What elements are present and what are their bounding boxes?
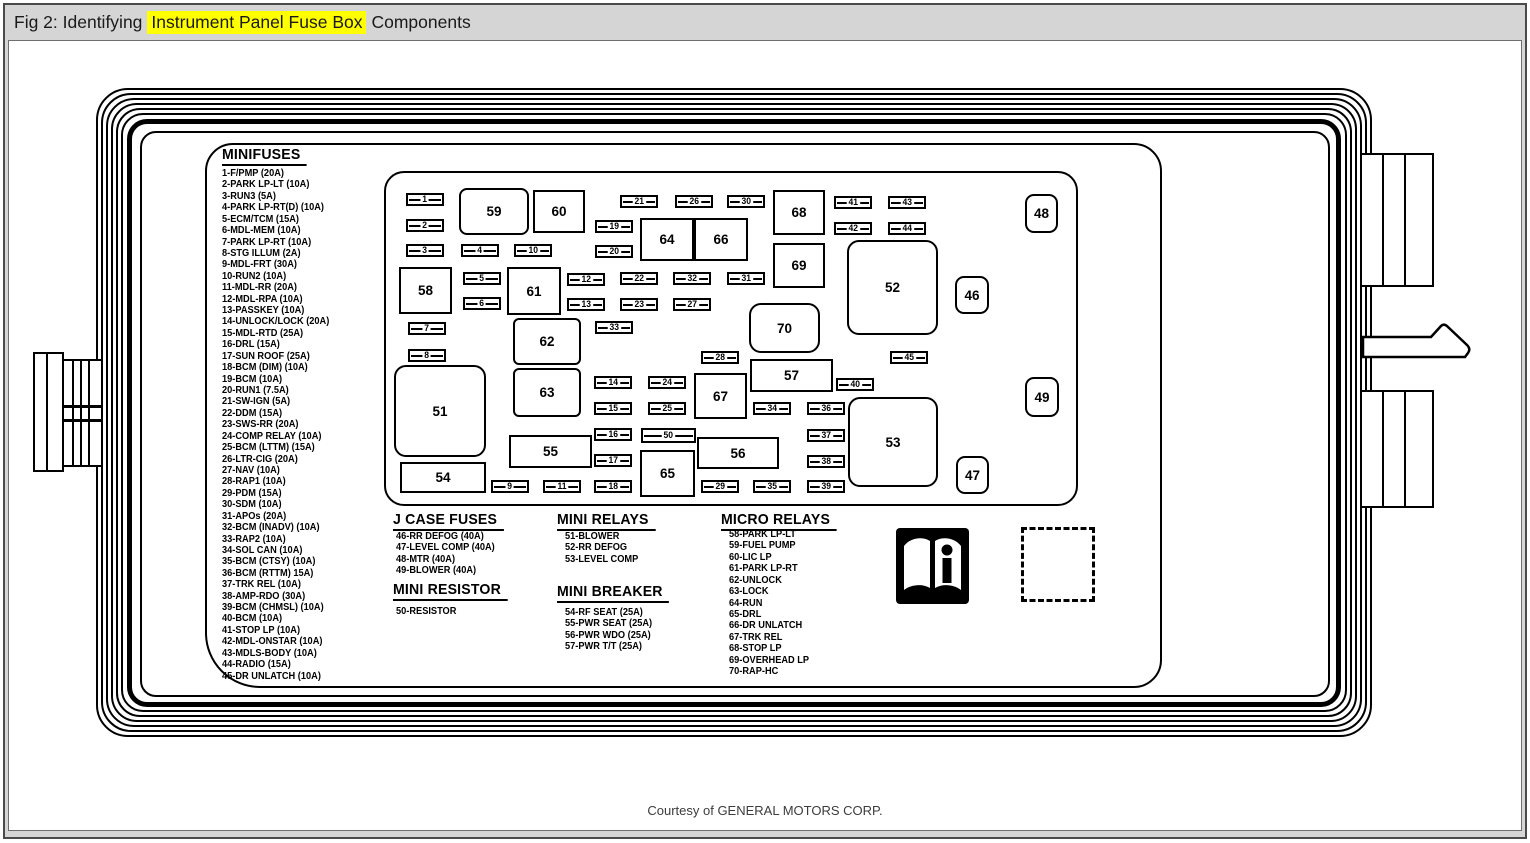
legend-item: 11-MDL-RR (20A) xyxy=(222,282,329,293)
fuse-number: 14 xyxy=(606,378,619,388)
fuse-slot: 17 xyxy=(594,454,632,467)
bracket-line xyxy=(46,354,48,470)
relay-slot: 48 xyxy=(1025,194,1058,233)
fuse-number: 19 xyxy=(607,222,620,232)
legend-item: 61-PARK LP-RT xyxy=(729,563,809,574)
mini-relays-heading: MINI RELAYS xyxy=(557,511,655,531)
fuse-number: 44 xyxy=(900,224,913,234)
fuse-slot: 2 xyxy=(406,219,444,232)
fuse-slot: 38 xyxy=(807,455,845,468)
fuse-slot: 21 xyxy=(620,195,658,208)
fuse-slot: 27 xyxy=(673,298,711,311)
fuse-number: 35 xyxy=(765,482,778,492)
fuse-slot: 15 xyxy=(594,402,632,415)
fuse-number: 39 xyxy=(819,482,832,492)
relay-slot: 63 xyxy=(513,368,581,417)
relay-number: 69 xyxy=(791,258,806,273)
relay-number: 58 xyxy=(418,283,433,298)
relay-number: 59 xyxy=(486,204,501,219)
mini-breaker-list: 54-RF SEAT (25A)55-PWR SEAT (25A)56-PWR … xyxy=(565,607,652,653)
mini-relays-list: 51-BLOWER52-RR DEFOG53-LEVEL COMP xyxy=(565,531,638,565)
fuse-slot: 33 xyxy=(595,321,633,334)
fuse-slot: 8 xyxy=(408,349,446,362)
fuse-slot: 16 xyxy=(594,428,632,441)
fuse-slot: 3 xyxy=(406,244,444,257)
legend-item: 44-RADIO (15A) xyxy=(222,659,329,670)
legend-item: 32-BCM (INADV) (10A) xyxy=(222,522,329,533)
jcase-heading: J CASE FUSES xyxy=(393,511,504,531)
relay-slot: 54 xyxy=(400,462,486,493)
fuse-number: 11 xyxy=(556,482,569,492)
open-book-info-icon xyxy=(895,524,971,606)
relay-number: 68 xyxy=(791,205,806,220)
fuse-number: 23 xyxy=(632,300,645,310)
micro-relays-list: 58-PARK LP-LT59-FUEL PUMP60-LIC LP61-PAR… xyxy=(729,529,809,677)
relay-number: 51 xyxy=(432,404,447,419)
legend-item: 53-LEVEL COMP xyxy=(565,554,638,565)
fuse-slot: 1 xyxy=(406,193,444,206)
figure-title-highlight: Instrument Panel Fuse Box xyxy=(147,11,366,34)
fuse-number: 20 xyxy=(607,247,620,257)
fuse-number: 27 xyxy=(685,300,698,310)
fuse-number: 18 xyxy=(606,482,619,492)
legend-item: 63-LOCK xyxy=(729,586,809,597)
fuse-slot: 43 xyxy=(888,196,926,209)
fuse-number: 7 xyxy=(423,324,431,334)
legend-item: 49-BLOWER (40A) xyxy=(396,565,495,576)
fuse-number: 31 xyxy=(739,274,752,284)
fuse-slot: 7 xyxy=(408,322,446,335)
fuse-slot: 28 xyxy=(701,351,739,364)
fuse-slot: 4 xyxy=(461,244,499,257)
relay-slot: 55 xyxy=(509,435,592,468)
fuse-number: 1 xyxy=(421,195,429,205)
fuse-slot: 14 xyxy=(594,376,632,389)
fuse-number: 38 xyxy=(819,457,832,467)
relay-number: 66 xyxy=(713,232,728,247)
legend-item: 23-SWS-RR (20A) xyxy=(222,419,329,430)
relay-number: 60 xyxy=(551,204,566,219)
fuse-slot: 12 xyxy=(567,273,605,286)
fuse-number: 25 xyxy=(660,404,673,414)
relay-number: 46 xyxy=(964,288,979,303)
fuse-number: 21 xyxy=(632,197,645,207)
relay-slot: 46 xyxy=(955,276,989,314)
relay-number: 54 xyxy=(435,470,450,485)
relay-slot: 67 xyxy=(694,373,747,419)
minifuses-heading: MINIFUSES xyxy=(222,146,307,166)
bracket-line xyxy=(72,361,74,465)
relay-number: 53 xyxy=(885,435,900,450)
relay-slot: 53 xyxy=(848,397,938,487)
fuse-number: 6 xyxy=(478,299,486,309)
relay-number: 62 xyxy=(539,334,554,349)
fuse-slot: 18 xyxy=(594,480,632,493)
fuse-number: 37 xyxy=(819,431,832,441)
fuse-slot: 20 xyxy=(595,245,633,258)
legend-item: 6-MDL-MEM (10A) xyxy=(222,225,329,236)
relay-number: 65 xyxy=(660,466,675,481)
fuse-slot: 34 xyxy=(753,402,791,415)
legend-item: 45-DR UNLATCH (10A) xyxy=(222,671,329,682)
fuse-number: 9 xyxy=(506,482,514,492)
fuse-number: 32 xyxy=(685,274,698,284)
courtesy-credit: Courtesy of GENERAL MOTORS CORP. xyxy=(0,803,1530,818)
relay-slot: 61 xyxy=(507,267,561,315)
relay-slot: 56 xyxy=(697,437,779,469)
relay-number: 56 xyxy=(730,446,745,461)
relay-slot: 69 xyxy=(773,243,825,288)
fuse-number: 10 xyxy=(526,246,539,256)
fuse-number: 5 xyxy=(478,274,486,284)
fuse-slot: 50 xyxy=(641,428,696,443)
fuse-slot: 10 xyxy=(514,244,552,257)
relay-number: 48 xyxy=(1034,206,1049,221)
legend-item: 4-PARK LP-RT(D) (10A) xyxy=(222,202,329,213)
fuse-number: 22 xyxy=(632,274,645,284)
right-bottom-tab xyxy=(1360,390,1434,508)
fuse-slot: 13 xyxy=(567,298,605,311)
relay-slot: 58 xyxy=(399,267,452,314)
relay-slot: 65 xyxy=(640,450,695,497)
relay-slot: 70 xyxy=(749,303,820,353)
fuse-number: 40 xyxy=(848,380,861,390)
fuse-slot: 26 xyxy=(675,195,713,208)
tab-line xyxy=(1404,155,1406,285)
fuse-number: 33 xyxy=(607,323,620,333)
mini-resistor-list: 50-RESISTOR xyxy=(396,606,456,617)
mini-resistor-heading: MINI RESISTOR xyxy=(393,581,508,601)
fuse-slot: 36 xyxy=(807,402,845,415)
relay-slot: 51 xyxy=(394,365,486,457)
fuse-number: 41 xyxy=(846,198,859,208)
fuse-slot: 6 xyxy=(463,297,501,310)
fuse-slot: 37 xyxy=(807,429,845,442)
jcase-list: 46-RR DEFOG (40A)47-LEVEL COMP (40A)48-M… xyxy=(396,531,495,577)
fuse-slot: 5 xyxy=(463,272,501,285)
fuse-slot: 44 xyxy=(888,222,926,235)
fuse-slot: 29 xyxy=(701,480,739,493)
relay-slot: 49 xyxy=(1025,377,1059,417)
relay-number: 70 xyxy=(777,321,792,336)
tab-line xyxy=(1382,155,1384,285)
fuse-number: 34 xyxy=(765,404,778,414)
figure-page: Fig 2: Identifying Instrument Panel Fuse… xyxy=(0,0,1530,843)
legend-item: 68-STOP LP xyxy=(729,643,809,654)
dashed-placeholder-box xyxy=(1021,527,1095,602)
fuse-number: 8 xyxy=(423,351,431,361)
fuse-number: 17 xyxy=(606,456,619,466)
fuse-number: 26 xyxy=(687,197,700,207)
legend-item: 18-BCM (DIM) (10A) xyxy=(222,362,329,373)
fuse-slot: 30 xyxy=(727,195,765,208)
right-latch-icon xyxy=(1353,318,1485,366)
relay-number: 64 xyxy=(659,232,674,247)
fuse-number: 42 xyxy=(846,224,859,234)
relay-number: 61 xyxy=(526,284,541,299)
fuse-slot: 41 xyxy=(834,196,872,209)
bracket-line xyxy=(62,405,103,408)
fuse-number: 12 xyxy=(579,275,592,285)
fuse-number: 45 xyxy=(902,353,915,363)
relay-number: 47 xyxy=(965,468,980,483)
bracket-line xyxy=(88,361,90,465)
relay-slot: 52 xyxy=(847,240,938,335)
right-top-tab xyxy=(1360,153,1434,287)
relay-number: 67 xyxy=(713,389,728,404)
fuse-number: 4 xyxy=(476,246,484,256)
fuse-slot: 11 xyxy=(543,480,581,493)
relay-number: 57 xyxy=(784,368,799,383)
fuse-number: 30 xyxy=(739,197,752,207)
legend-item: 70-RAP-HC xyxy=(729,666,809,677)
fuse-number: 29 xyxy=(713,482,726,492)
relay-slot: 47 xyxy=(956,456,989,494)
fuse-number: 36 xyxy=(819,404,832,414)
tab-line xyxy=(1382,392,1384,506)
legend-item: 50-RESISTOR xyxy=(396,606,456,617)
fuse-slot: 35 xyxy=(753,480,791,493)
fuse-slot: 40 xyxy=(836,378,874,391)
fuse-number: 3 xyxy=(421,246,429,256)
fuse-slot: 31 xyxy=(727,272,765,285)
relay-number: 63 xyxy=(539,385,554,400)
legend-item: 25-BCM (LTTM) (15A) xyxy=(222,442,329,453)
relay-slot: 68 xyxy=(773,190,825,235)
bracket-line xyxy=(62,419,103,422)
left-mount-bracket-inner xyxy=(62,359,103,467)
fuse-slot: 19 xyxy=(595,220,633,233)
relay-slot: 66 xyxy=(694,218,748,261)
relay-number: 55 xyxy=(543,444,558,459)
figure-title-prefix: Fig 2: Identifying xyxy=(14,12,142,33)
fuse-slot: 23 xyxy=(620,298,658,311)
fuse-number: 43 xyxy=(900,198,913,208)
fuse-number: 2 xyxy=(421,221,429,231)
relay-number: 52 xyxy=(885,280,900,295)
bracket-line xyxy=(80,361,82,465)
fuse-slot: 39 xyxy=(807,480,845,493)
fuse-slot: 32 xyxy=(673,272,711,285)
relay-slot: 59 xyxy=(459,188,529,235)
figure-title-suffix: Components xyxy=(371,12,470,33)
relay-number: 49 xyxy=(1034,390,1049,405)
fuse-slot: 42 xyxy=(834,222,872,235)
figure-title-bar: Fig 2: Identifying Instrument Panel Fuse… xyxy=(5,5,1525,39)
fuse-number: 16 xyxy=(606,430,619,440)
fuse-number: 15 xyxy=(606,404,619,414)
fuse-slot: 9 xyxy=(491,480,529,493)
relay-slot: 64 xyxy=(640,218,694,261)
fuse-slot: 24 xyxy=(648,376,686,389)
relay-slot: 57 xyxy=(750,359,833,392)
fuse-number: 13 xyxy=(579,300,592,310)
legend-item: 57-PWR T/T (25A) xyxy=(565,641,652,652)
legend-item: 30-SDM (10A) xyxy=(222,499,329,510)
fuse-slot: 45 xyxy=(890,351,928,364)
minifuses-list: 1-F/PMP (20A)2-PARK LP-LT (10A)3-RUN3 (5… xyxy=(222,168,329,682)
relay-slot: 60 xyxy=(533,190,585,233)
fuse-slot: 25 xyxy=(648,402,686,415)
legend-item: 42-MDL-ONSTAR (10A) xyxy=(222,636,329,647)
legend-item: 37-TRK REL (10A) xyxy=(222,579,329,590)
fuse-number: 24 xyxy=(660,378,673,388)
mini-breaker-heading: MINI BREAKER xyxy=(557,583,669,603)
tab-line xyxy=(1404,392,1406,506)
fuse-slot: 22 xyxy=(620,272,658,285)
left-mount-bracket xyxy=(33,352,64,472)
relay-slot: 62 xyxy=(513,318,581,365)
fuse-number: 28 xyxy=(713,353,726,363)
fuse-number: 50 xyxy=(662,431,675,441)
